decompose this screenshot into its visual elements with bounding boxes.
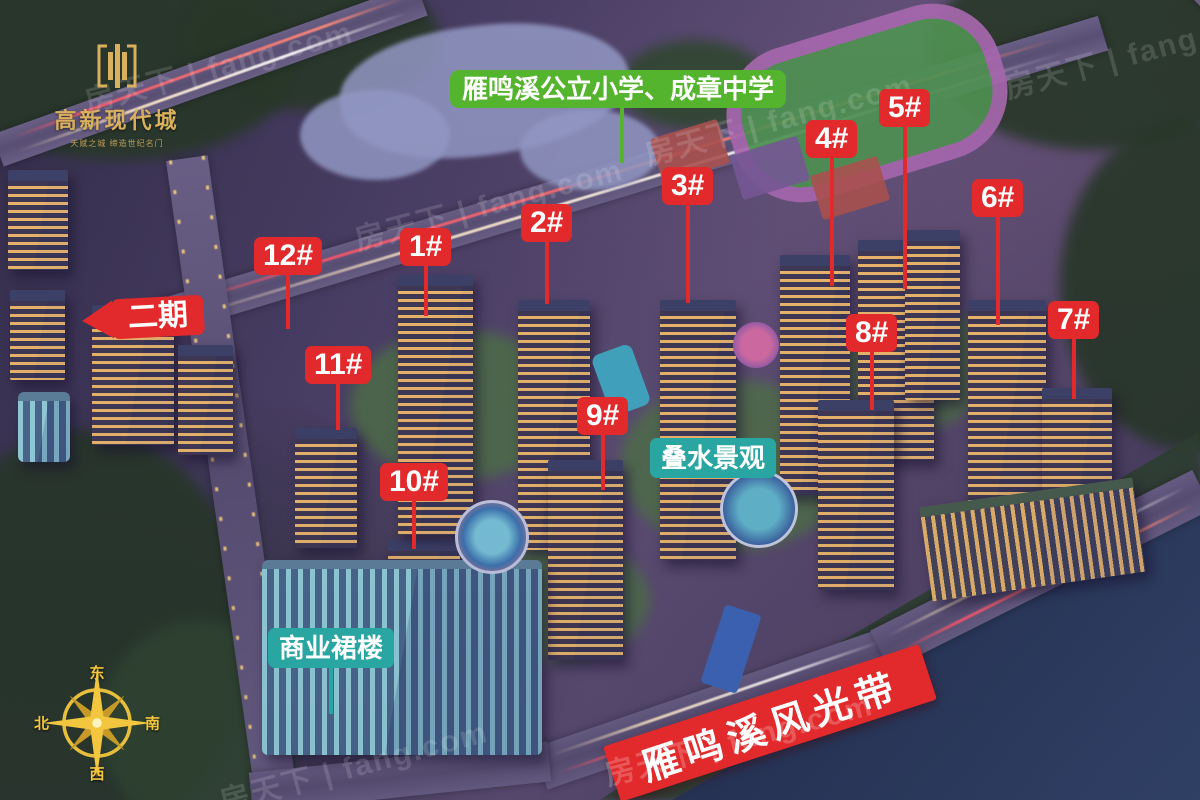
- building-label-10: 10#: [380, 463, 448, 501]
- building-label-text: 4#: [815, 124, 848, 154]
- building-label-1: 1#: [400, 228, 451, 266]
- building-label-7: 7#: [1048, 301, 1099, 339]
- project-tagline: 天赋之城 缔造世纪名门: [52, 138, 182, 149]
- building-label-text: 7#: [1057, 305, 1090, 335]
- building-tower: [18, 392, 70, 462]
- phase2-label-text: 二期: [127, 300, 188, 333]
- label-stem: [1072, 339, 1076, 399]
- label-stem: [601, 435, 605, 490]
- label-stem: [336, 384, 340, 430]
- school-label-text: 雁鸣溪公立小学、成章中学: [462, 76, 774, 102]
- building-label-12: 12#: [254, 237, 322, 275]
- building-label-text: 1#: [409, 232, 442, 262]
- building-label-8: 8#: [846, 314, 897, 352]
- building-tower: [10, 290, 65, 380]
- phase2-label: 二期: [111, 295, 205, 340]
- label-stem: [424, 266, 428, 316]
- playground: [733, 322, 779, 368]
- fountain-plaza: [455, 500, 529, 574]
- building-tower: [968, 300, 1046, 510]
- school-label-stem: [620, 108, 624, 163]
- label-stem: [545, 242, 549, 304]
- label-stem: [830, 158, 834, 286]
- compass-rose-icon: [38, 664, 156, 782]
- building-label-6: 6#: [972, 179, 1023, 217]
- building-label-2: 2#: [521, 204, 572, 242]
- building-label-4: 4#: [806, 120, 857, 158]
- building-label-text: 8#: [855, 318, 888, 348]
- building-label-text: 3#: [671, 171, 704, 201]
- building-label-text: 2#: [530, 208, 563, 238]
- building-tower: [8, 170, 68, 270]
- school-building: [300, 90, 450, 180]
- building-label-text: 9#: [586, 401, 619, 431]
- building-tower: [178, 345, 233, 455]
- water-feature-label: 叠水景观: [650, 438, 776, 478]
- building-tower: [818, 400, 894, 590]
- label-stem: [412, 501, 416, 549]
- building-label-text: 11#: [314, 350, 362, 380]
- water-feature-label-text: 叠水景观: [661, 445, 765, 471]
- compass: 东 南 西 北: [38, 664, 156, 782]
- building-tower: [295, 428, 357, 548]
- logo-emblem-icon: [95, 40, 139, 92]
- building-label-text: 10#: [389, 467, 439, 497]
- arrow-left-icon: [81, 300, 114, 340]
- commercial-podium-label: 商业裙楼: [268, 628, 394, 668]
- site-plan-render: 房天下 | fang.com 房天下 | fang.com 房天下 | fang…: [0, 0, 1200, 800]
- label-stem: [329, 668, 333, 714]
- water-feature: [720, 470, 798, 548]
- label-stem: [286, 275, 290, 329]
- label-stem: [903, 127, 907, 289]
- building-label-text: 12#: [263, 241, 313, 271]
- building-label-5: 5#: [879, 89, 930, 127]
- building-tower: [905, 230, 960, 400]
- label-stem: [686, 205, 690, 303]
- developer-logo: 高新现代城 天赋之城 缔造世纪名门: [52, 40, 182, 149]
- building-label-11: 11#: [305, 346, 371, 384]
- building-label-text: 5#: [888, 93, 921, 123]
- label-stem: [870, 352, 874, 410]
- school-label: 雁鸣溪公立小学、成章中学: [450, 70, 786, 108]
- commercial-podium-label-text: 商业裙楼: [279, 635, 383, 661]
- building-tower: [548, 460, 623, 660]
- project-name: 高新现代城: [52, 103, 182, 135]
- building-label-3: 3#: [662, 167, 713, 205]
- building-label-text: 6#: [981, 183, 1014, 213]
- building-label-9: 9#: [577, 397, 628, 435]
- label-stem: [996, 217, 1000, 325]
